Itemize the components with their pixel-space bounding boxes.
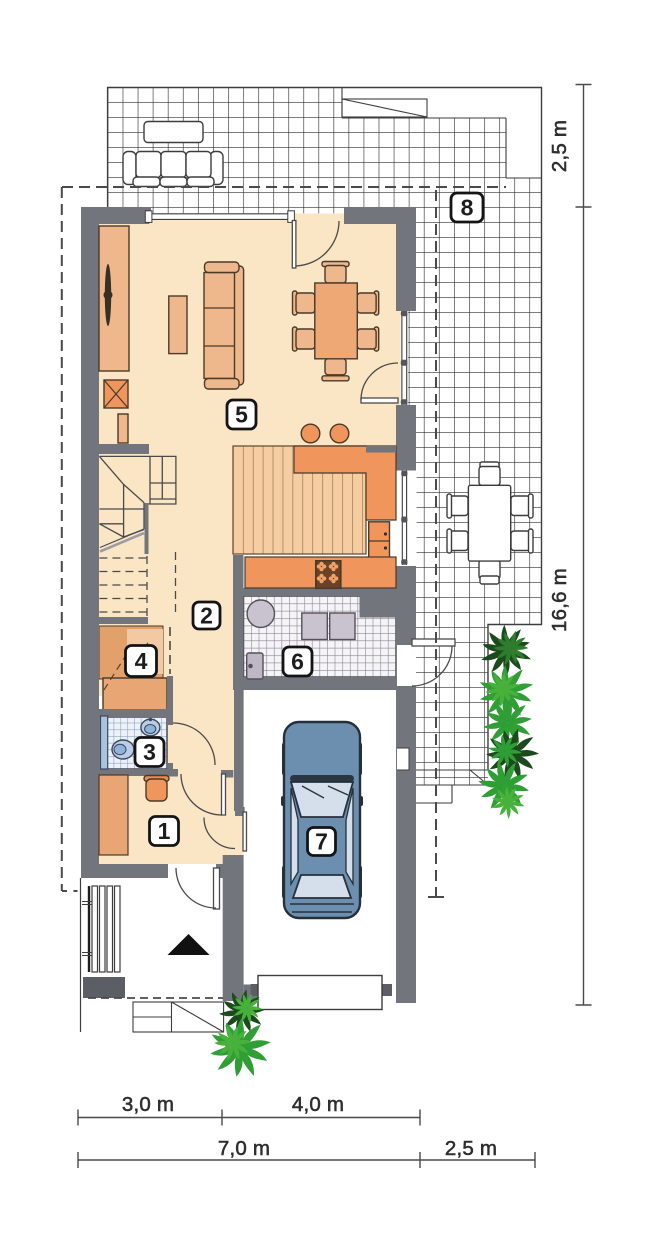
svg-text:7: 7 <box>315 829 328 855</box>
svg-text:2,5 m: 2,5 m <box>548 120 571 172</box>
svg-text:5: 5 <box>235 402 248 428</box>
svg-text:1: 1 <box>158 818 171 844</box>
svg-text:3: 3 <box>143 739 156 765</box>
svg-text:7,0 m: 7,0 m <box>218 1137 270 1160</box>
svg-text:8: 8 <box>461 195 474 221</box>
svg-text:16,6 m: 16,6 m <box>548 568 571 632</box>
svg-text:2,5 m: 2,5 m <box>445 1137 497 1160</box>
svg-text:2: 2 <box>200 603 213 629</box>
svg-text:4: 4 <box>135 648 148 674</box>
svg-text:6: 6 <box>291 649 304 675</box>
svg-text:3,0 m: 3,0 m <box>122 1093 174 1116</box>
svg-text:4,0 m: 4,0 m <box>292 1093 344 1116</box>
